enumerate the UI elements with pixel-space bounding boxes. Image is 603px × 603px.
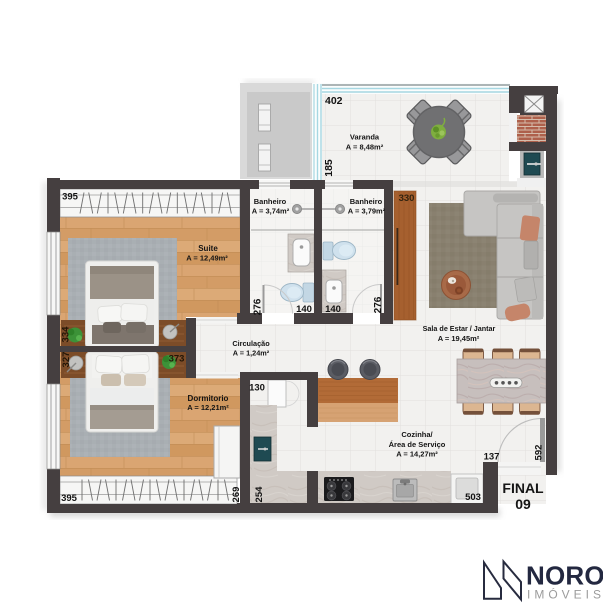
svg-text:503: 503 — [465, 492, 481, 503]
svg-text:NORO: NORO — [526, 561, 603, 591]
svg-text:137: 137 — [484, 452, 500, 463]
svg-text:A = 1,24m²: A = 1,24m² — [233, 349, 270, 358]
svg-text:140: 140 — [325, 304, 341, 315]
svg-text:A = 19,45m²: A = 19,45m² — [438, 334, 480, 343]
svg-text:185: 185 — [323, 159, 335, 177]
svg-text:Cozinha/: Cozinha/ — [401, 430, 433, 439]
svg-text:A = 14,27m²: A = 14,27m² — [396, 450, 438, 459]
svg-text:Sala de Estar / Jantar: Sala de Estar / Jantar — [423, 324, 496, 333]
svg-text:276: 276 — [373, 296, 384, 313]
svg-text:IMÓVEIS: IMÓVEIS — [527, 587, 603, 602]
svg-text:Varanda: Varanda — [350, 133, 380, 142]
svg-text:Banheiro: Banheiro — [350, 197, 383, 206]
svg-text:Banheiro: Banheiro — [254, 197, 287, 206]
svg-text:395: 395 — [62, 192, 79, 203]
svg-text:330: 330 — [399, 193, 415, 204]
svg-text:A = 8,48m²: A = 8,48m² — [346, 143, 384, 152]
svg-text:FINAL: FINAL — [502, 480, 544, 496]
svg-text:592: 592 — [534, 445, 545, 461]
svg-text:327: 327 — [61, 352, 72, 368]
svg-text:254: 254 — [254, 486, 265, 503]
svg-text:09: 09 — [515, 496, 531, 512]
svg-text:Área de Serviço: Área de Serviço — [389, 440, 446, 449]
svg-text:A = 3,79m²: A = 3,79m² — [348, 207, 386, 216]
svg-text:Circulação: Circulação — [232, 339, 270, 348]
svg-text:373: 373 — [169, 354, 185, 365]
svg-text:395: 395 — [61, 493, 78, 504]
svg-text:A = 3,74m²: A = 3,74m² — [252, 207, 290, 216]
svg-text:Dormitorio: Dormitorio — [188, 394, 229, 403]
svg-text:130: 130 — [249, 383, 265, 394]
svg-text:A = 12,49m²: A = 12,49m² — [186, 254, 228, 263]
svg-text:269: 269 — [231, 487, 242, 503]
svg-text:276: 276 — [253, 298, 264, 315]
svg-text:140: 140 — [296, 304, 312, 315]
svg-text:A = 12,21m²: A = 12,21m² — [187, 403, 229, 412]
svg-text:334: 334 — [61, 326, 72, 343]
svg-text:402: 402 — [325, 95, 343, 107]
svg-text:Suite: Suite — [198, 244, 218, 253]
